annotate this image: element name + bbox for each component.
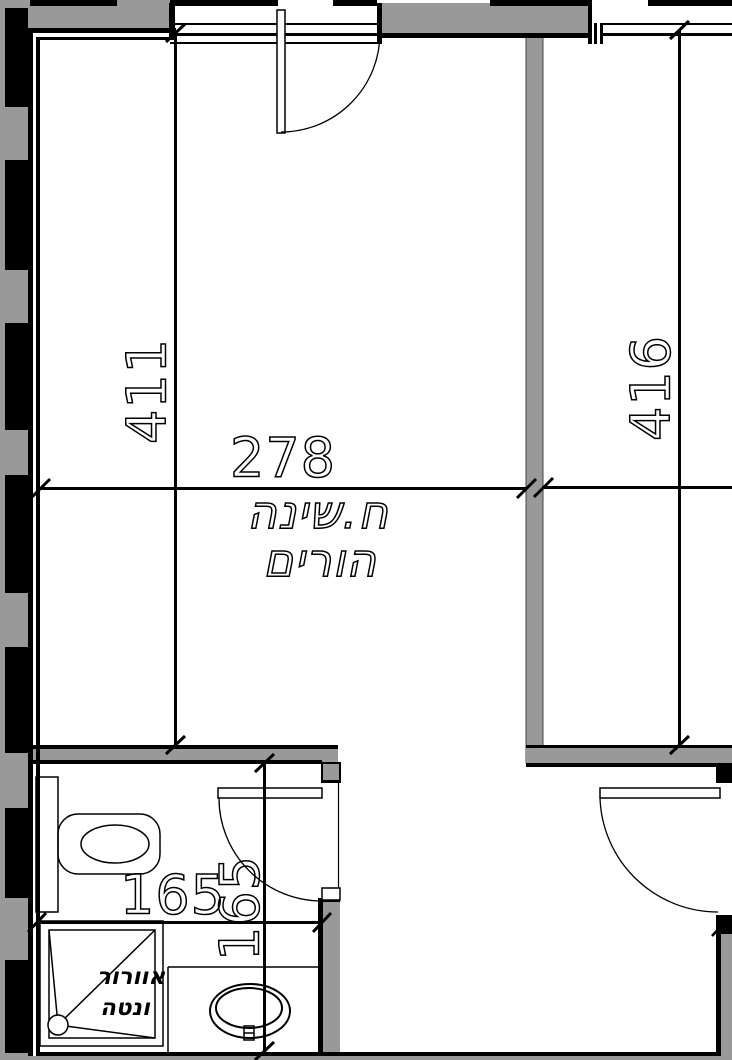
top-wall-line-a2 (40, 37, 176, 40)
vanity-sink (168, 967, 322, 1052)
room2-door-sill-block (716, 915, 732, 934)
top-window-line-3 (170, 42, 377, 44)
block-edge-bottom (377, 33, 592, 38)
facade-window-6 (5, 808, 28, 898)
dim-text-411: 411 (116, 338, 179, 444)
top-bar-2 (170, 0, 278, 6)
shower-drain (48, 1015, 68, 1035)
top-window-line-2 (170, 33, 377, 36)
room2-wall-bottom-edge (526, 763, 719, 767)
bath-door-lintel (322, 780, 340, 783)
shower-note-line2: ונטה (100, 995, 150, 1021)
top-bar-5 (648, 0, 732, 6)
toilet-seat (81, 825, 149, 863)
shower-slope-line-3 (58, 1025, 155, 1038)
wall-top-center-block (378, 3, 592, 34)
facade-window-3 (5, 323, 28, 430)
facade-window-5 (5, 647, 28, 753)
shower-note-line1: אוורור (97, 964, 165, 990)
facade-window-2 (5, 160, 28, 270)
wall-bathroom-right-lower (322, 900, 340, 1056)
top-bar-4 (490, 0, 592, 6)
bedroom-door-leaf (277, 10, 285, 133)
room2-wall-top-edge (526, 745, 732, 748)
top-window-right-2 (601, 33, 732, 36)
shower-slope-line-1 (49, 930, 58, 1025)
left-wall-face-outer (28, 28, 33, 1056)
top-bar-1 (30, 0, 117, 6)
top-wall-jamb-right-1 (594, 23, 597, 44)
bath-door-leaf (218, 788, 322, 798)
sink-outer-rim (210, 984, 290, 1038)
room-label-line1: ח.שינה (247, 485, 389, 539)
facade-window-7 (5, 960, 28, 1053)
facade-window-1 (5, 8, 28, 107)
room2-door-head-block (716, 763, 732, 783)
top-window-line-1 (170, 23, 377, 25)
sink-basin (216, 988, 282, 1028)
wall-bathroom-right-upper (322, 763, 340, 782)
floor-plan: 411 278 416 165 165 ח.שינה הורים אוורור … (0, 0, 732, 1060)
right-wall-face (716, 934, 721, 1056)
bath-wall-bottom-edge (33, 760, 322, 764)
top-bar-3 (333, 0, 377, 6)
bath-wall-top-edge (33, 745, 338, 749)
wall-bottom-band (0, 1056, 732, 1060)
bottom-wall-edge (36, 1052, 719, 1056)
bath-door-jamb (322, 888, 340, 900)
dim-text-165-vertical: 165 (209, 855, 272, 961)
dim-text-416: 416 (620, 335, 683, 441)
wall-room-divider (526, 36, 543, 763)
top-wall-line-a1 (28, 28, 176, 33)
room2-door-leaf (600, 788, 720, 798)
top-window-right-1 (601, 23, 732, 25)
facade-window-4 (5, 475, 28, 593)
room-label-line2: הורים (263, 533, 377, 587)
room2-door-swing-arc (600, 798, 718, 912)
dim-text-278: 278 (230, 427, 336, 490)
bedroom-door-swing-arc (281, 33, 380, 132)
